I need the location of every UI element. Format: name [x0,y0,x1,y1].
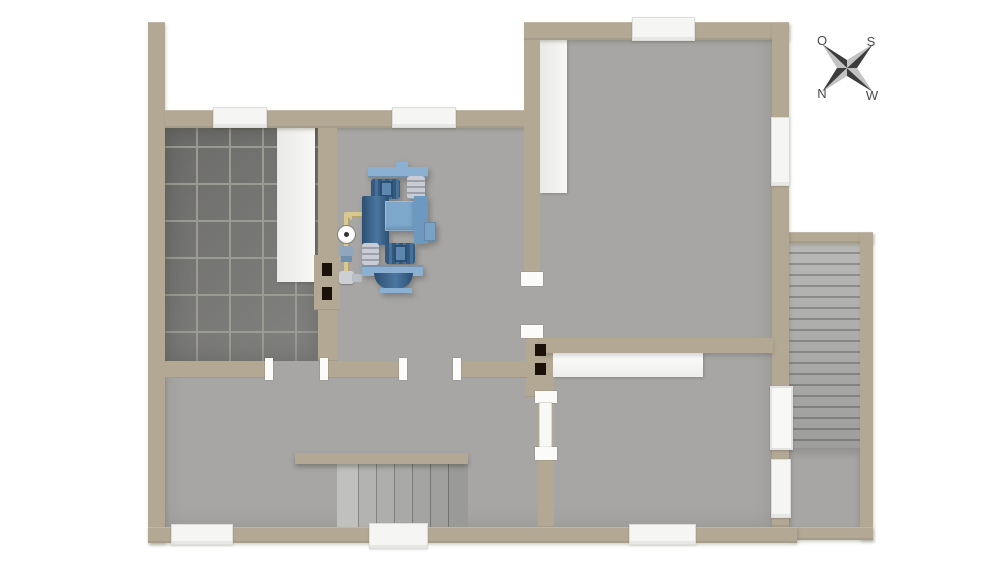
window [213,107,267,128]
hall-wall-segment [461,361,527,378]
flue-opening [322,287,332,300]
window [632,17,695,41]
window [171,524,233,545]
right-section-wall [540,338,773,353]
control-panel [385,201,416,231]
window [771,459,791,518]
interior-staircase [337,464,468,527]
stair-landing-tread [337,464,358,527]
stair-tread [430,464,448,527]
hall-wall-segment [165,361,265,378]
tank-bottom-arc [374,273,413,289]
stair-tread [412,464,430,527]
spine-wall-upper [524,40,540,273]
door-frame-post [320,358,328,380]
exterior-staircase-treads [789,243,860,448]
gauge-needle-hub [344,232,349,237]
counter-bottom-right-room [553,351,703,377]
flue-opening [535,363,546,375]
pipe-fitting [340,246,353,256]
steel-canister-bottom [362,243,379,265]
door-frame-post [453,358,461,380]
compass-label-north: N [817,86,826,101]
flue-opening [322,263,332,276]
floorplan-canvas: O S N W [0,0,1000,562]
door-frame-post [521,325,543,338]
boiler-heating-unit [358,160,438,295]
pump-head-top [380,181,393,197]
window [629,524,696,545]
cabinet-top-right-room [540,40,567,193]
unit-bottom-tab [380,288,412,293]
pipe-fitting [341,256,352,262]
pump-head-bottom [394,245,407,262]
flue-opening [535,344,546,356]
top-left-recess [148,0,524,110]
compass-label-south: S [867,34,876,49]
tiled-room-right-wall [318,128,337,361]
exterior-stair-door [770,386,793,450]
exterior-staircase-landing [789,448,860,527]
stair-opening-beam [295,453,468,464]
door-frame-post [521,272,543,286]
stair-tread [358,464,376,527]
white-panel-tiled-room [277,128,315,282]
window [771,117,790,186]
window [392,107,456,128]
stair-tread [448,464,468,527]
compass-label-west: W [866,88,879,103]
compass-rose: O S N W [805,28,890,106]
stair-tread [376,464,394,527]
door-frame-post [535,447,557,460]
hall-wall-segment [328,361,399,378]
door-frame-post [265,358,273,380]
door-frame-post [399,358,407,380]
exterior-staircase-bottom-wall [789,527,873,540]
exterior-staircase-right-wall [860,232,873,540]
compass-star [822,44,873,92]
stairwell-window [369,523,428,549]
side-box [424,222,436,241]
left-exterior-wall [148,22,165,543]
bottom-exterior-wall [148,527,797,543]
door-leaf [539,402,552,448]
stair-tread [394,464,412,527]
compass-label-east: O [817,33,827,48]
right-exterior-wall [772,22,789,527]
